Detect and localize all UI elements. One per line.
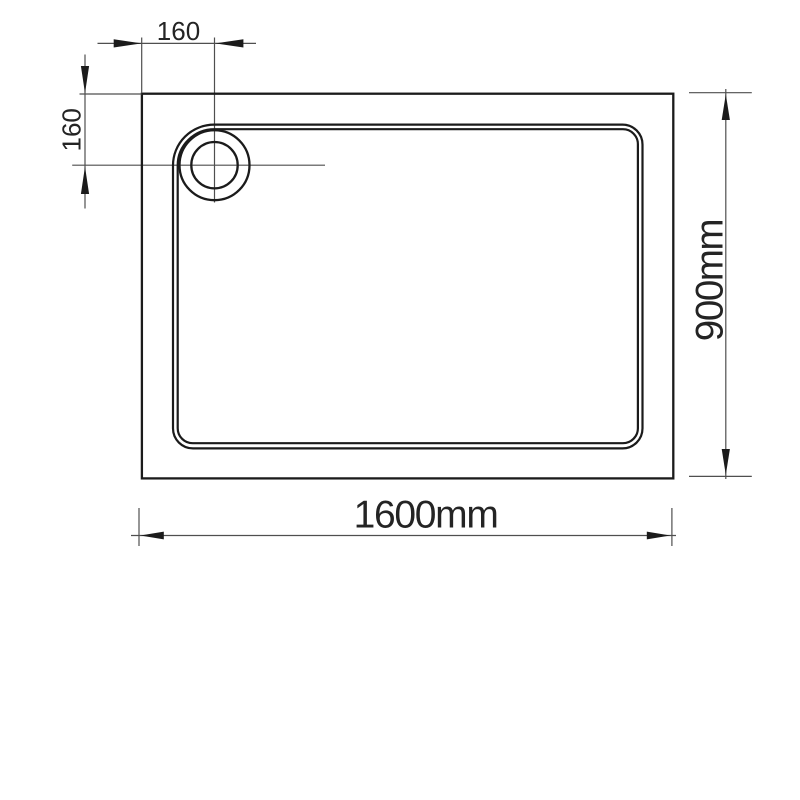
svg-text:1600mm: 1600mm (354, 494, 498, 537)
svg-text:900mm: 900mm (689, 220, 732, 341)
svg-text:160: 160 (57, 108, 87, 151)
svg-text:160: 160 (157, 16, 200, 46)
